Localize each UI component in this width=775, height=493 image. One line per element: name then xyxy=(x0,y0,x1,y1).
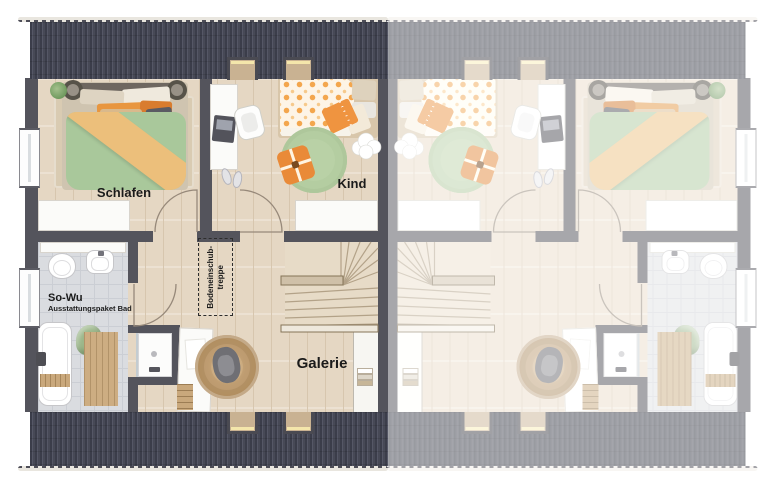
wall-hall-middle xyxy=(535,231,578,242)
throw-blanket-orange xyxy=(66,112,186,190)
window-bath xyxy=(19,268,40,328)
toilet-seat xyxy=(53,260,71,276)
wall-bath xyxy=(128,242,138,283)
nightstand-top xyxy=(696,84,708,96)
bath-caddy xyxy=(40,374,70,387)
window-schlafen xyxy=(735,128,756,188)
tub-faucet xyxy=(36,352,46,366)
floorplan: Schlafen Kind Galerie So-Wu Ausstattungs… xyxy=(0,0,775,493)
dormer-glazing xyxy=(465,427,488,430)
left-unit: Schlafen Kind Galerie So-Wu Ausstattungs… xyxy=(0,0,388,493)
basin-bowl xyxy=(91,257,109,271)
towel-stack xyxy=(402,368,418,388)
slipper xyxy=(232,170,244,188)
dormer-window xyxy=(517,57,548,80)
small-shelf xyxy=(582,384,598,410)
shower-tray xyxy=(603,333,637,377)
throw-blanket-orange xyxy=(589,112,709,190)
kids-dresser xyxy=(295,200,378,231)
bath-caddy xyxy=(705,374,735,387)
shower-drain xyxy=(151,351,157,357)
slipper xyxy=(542,167,556,186)
dormer-glazing xyxy=(521,427,544,430)
plant xyxy=(708,82,725,99)
slipper xyxy=(532,170,544,188)
wooden-bath-mat xyxy=(84,332,118,406)
washbasin xyxy=(86,250,114,274)
room-label-galerie: Galerie xyxy=(282,356,362,372)
chair-pad xyxy=(516,111,535,133)
slippers xyxy=(222,168,246,192)
wall-hall-schlafen xyxy=(38,231,153,242)
toilet xyxy=(699,253,727,279)
staircase-floor xyxy=(397,242,490,332)
faucet xyxy=(98,251,104,256)
window-bath xyxy=(735,268,756,328)
bath-package-subtitle: Ausstattungspaket Bad xyxy=(48,305,132,313)
plant xyxy=(50,82,67,99)
toilet-seat xyxy=(704,260,722,276)
dormer-window xyxy=(461,412,492,434)
duvet-green xyxy=(66,112,186,190)
dormer-glazing xyxy=(287,61,310,64)
roof-top xyxy=(388,22,746,79)
roof-bottom xyxy=(388,412,746,466)
chair-pad xyxy=(539,354,558,377)
attic-hatch-label-line2: treppe xyxy=(216,265,225,289)
window-pane xyxy=(744,274,747,322)
eave-gutter-bottom xyxy=(388,466,758,471)
laptop xyxy=(212,115,237,143)
dormer-glazing xyxy=(465,61,488,64)
pillow xyxy=(351,79,376,100)
window-pane xyxy=(744,134,747,182)
shower-fitting xyxy=(615,367,626,372)
built-in-closet xyxy=(645,200,737,231)
roof-top xyxy=(30,22,388,79)
duvet-green xyxy=(589,112,709,190)
dormer-glazing xyxy=(521,61,544,64)
room-label-kind: Kind xyxy=(330,177,374,191)
faucet xyxy=(671,251,677,256)
laptop-screen xyxy=(542,119,559,131)
staircase-floor xyxy=(285,242,378,332)
dormer-glazing xyxy=(287,427,310,430)
shower-wall-bottom xyxy=(595,377,647,385)
wall-hall-schlafen xyxy=(622,231,737,242)
basin-bowl xyxy=(666,257,684,271)
room-label-schlafen: Schlafen xyxy=(79,186,169,200)
shower-fitting xyxy=(149,367,160,372)
dormer-window xyxy=(283,412,314,434)
wall-bath xyxy=(637,242,647,283)
dormer-window xyxy=(227,57,258,80)
shower-glass xyxy=(136,333,138,377)
chair-pad xyxy=(216,354,235,377)
toilet xyxy=(48,253,76,279)
wooden-bath-mat xyxy=(657,332,691,406)
eave-gutter-bottom xyxy=(18,466,388,471)
small-shelf xyxy=(177,384,193,410)
pillow xyxy=(398,79,423,100)
laptop-screen xyxy=(216,119,233,131)
shower-wall-top xyxy=(595,325,647,333)
window-schlafen xyxy=(19,128,40,188)
roof-bottom xyxy=(30,412,388,466)
towel xyxy=(357,380,373,386)
bath-package-title: So-Wu xyxy=(48,293,83,305)
dormer-window xyxy=(461,57,492,80)
cistern-shelf xyxy=(40,242,126,253)
party-wall xyxy=(378,78,388,412)
wall-hall-kind xyxy=(284,231,378,242)
party-wall xyxy=(388,78,398,412)
shower-glass xyxy=(637,333,639,377)
built-in-closet xyxy=(38,200,130,231)
window-pane xyxy=(28,134,31,182)
nightstand-top xyxy=(592,84,604,96)
towel xyxy=(402,380,418,386)
dormer-window xyxy=(283,57,314,80)
attic-hatch-label-line1: Bodeneinschub- xyxy=(206,246,215,309)
slippers xyxy=(529,168,553,192)
kids-dresser xyxy=(397,200,480,231)
tub-faucet xyxy=(729,352,739,366)
cistern-shelf xyxy=(649,242,735,253)
wall-bath-lower xyxy=(637,385,647,412)
laptop xyxy=(539,115,564,143)
shower-wall-top xyxy=(128,325,180,333)
right-unit xyxy=(388,0,775,493)
shower-drain xyxy=(618,351,624,357)
dormer-window xyxy=(227,412,258,434)
washbasin xyxy=(661,250,689,274)
shower-tray xyxy=(138,333,172,377)
chair-pad xyxy=(240,111,259,133)
dormer-glazing xyxy=(231,61,254,64)
nightstand-top xyxy=(171,84,183,96)
wall-bath-lower xyxy=(128,385,138,412)
window-pane xyxy=(28,274,31,322)
dormer-glazing xyxy=(231,427,254,430)
shower-wall-bottom xyxy=(128,377,180,385)
wall-hall-kind xyxy=(397,231,491,242)
attic-hatch-annotation: Bodeneinschub- treppe xyxy=(198,238,233,316)
dormer-window xyxy=(517,412,548,434)
slipper xyxy=(220,167,234,186)
nightstand-top xyxy=(67,84,79,96)
